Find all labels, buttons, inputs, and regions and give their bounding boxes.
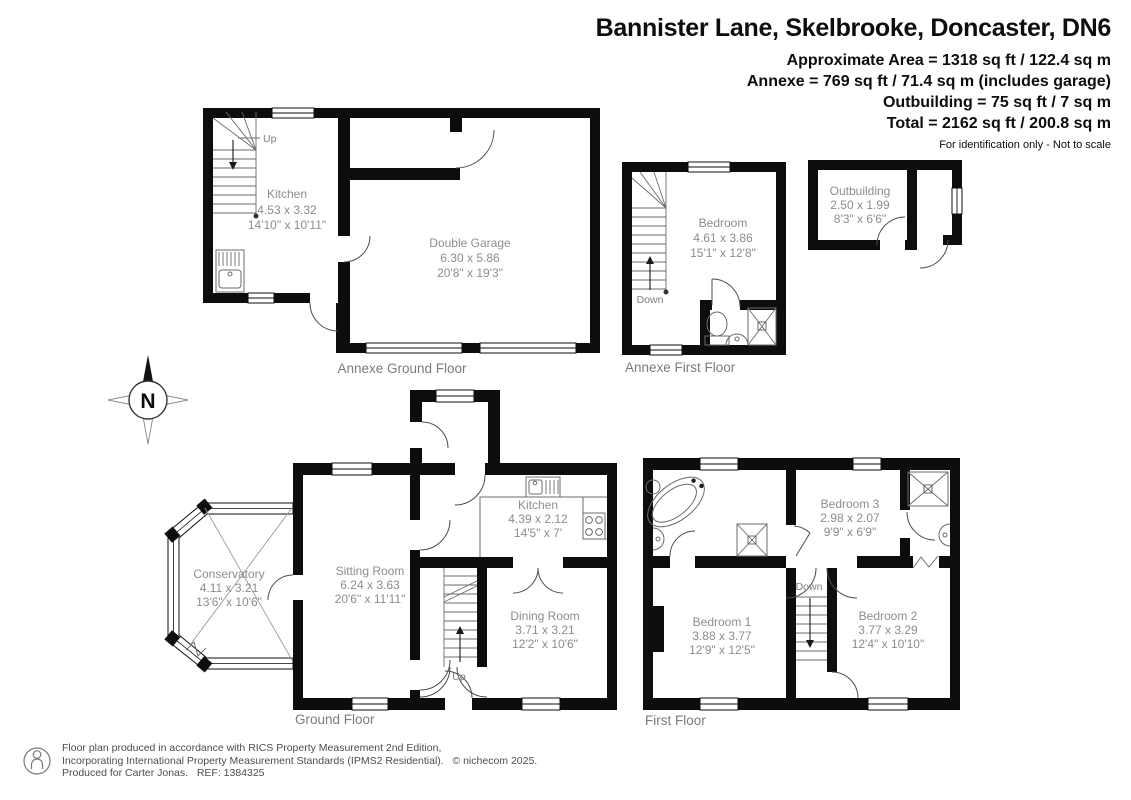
annexe-first-doors <box>712 279 740 307</box>
footer-line-3: Produced for Carter Jonas. REF: 1384325 <box>62 767 537 780</box>
ground-stairs: Up <box>444 568 477 683</box>
room-imperial: 8'3" x 6'6" <box>834 212 886 226</box>
room-name: Bedroom 1 <box>693 615 752 629</box>
room-imperial: 12'9" x 12'5" <box>689 643 755 657</box>
annexe-ground-stairs-label: Up <box>263 133 277 145</box>
room-metric: 3.77 x 3.29 <box>858 623 918 637</box>
bedroom2-label: Bedroom 2 3.77 x 3.29 12'4" x 10'10" <box>852 609 925 651</box>
room-imperial: 13'6" x 10'6" <box>196 595 262 609</box>
room-imperial: 15'1" x 12'8" <box>690 246 756 260</box>
footer-text: Floor plan produced in accordance with R… <box>62 742 537 780</box>
compass-rose: N <box>108 356 188 444</box>
first-floor-label: First Floor <box>645 713 706 728</box>
annexe-bedroom-label: Bedroom 4.61 x 3.86 15'1" x 12'8" <box>690 216 756 260</box>
room-imperial: 9'9" x 6'9" <box>824 525 876 539</box>
ground-kitchen-label: Kitchen 4.39 x 2.12 14'5" x 7' <box>508 498 568 540</box>
annexe-first-stairs-label: Down <box>637 294 664 306</box>
room-name: Outbuilding <box>830 184 891 198</box>
room-name: Double Garage <box>429 236 511 250</box>
person-logo-icon <box>22 742 52 780</box>
plan-annexe-ground-floor: Up Kitchen 4.53 x 3.32 14'10" x 10'11" D… <box>203 108 600 376</box>
room-imperial: 20'8" x 19'3" <box>437 266 503 280</box>
room-metric: 2.50 x 1.99 <box>830 198 890 212</box>
plan-annexe-first-floor: Down Bedroom 4.61 x 3.86 15'1" x 12'8" A… <box>622 162 786 375</box>
shower-icon <box>748 308 776 345</box>
plan-outbuilding: Outbuilding 2.50 x 1.99 8'3" x 6'6" <box>808 160 962 268</box>
floor-plan-svg: Up Kitchen 4.53 x 3.32 14'10" x 10'11" D… <box>0 0 1131 800</box>
outbuilding-windows <box>952 188 962 214</box>
ground-floor-label: Ground Floor <box>295 712 375 727</box>
conservatory-label: Conservatory 4.11 x 3.21 13'6" x 10'6" <box>193 567 264 609</box>
compass-north-label: N <box>140 390 155 413</box>
sitting-room-label: Sitting Room 6.24 x 3.63 20'6" x 11'11" <box>335 564 406 606</box>
room-name: Conservatory <box>193 567 264 581</box>
room-name: Kitchen <box>267 187 307 201</box>
room-metric: 6.30 x 5.86 <box>440 251 500 265</box>
room-metric: 4.11 x 3.21 <box>200 581 259 595</box>
ensuite-shower-icon <box>908 472 948 506</box>
annexe-bathroom-fixtures <box>705 308 776 345</box>
room-imperial: 12'2" x 10'6" <box>512 637 578 651</box>
room-metric: 3.88 x 3.77 <box>692 629 752 643</box>
dining-room-label: Dining Room 3.71 x 3.21 12'2" x 10'6" <box>510 609 579 651</box>
room-name: Bedroom 3 <box>821 497 880 511</box>
shower-icon <box>737 524 767 556</box>
kitchen-sink-icon <box>526 477 560 497</box>
bedroom1-label: Bedroom 1 3.88 x 3.77 12'9" x 12'5" <box>689 615 755 657</box>
footer: Floor plan produced in accordance with R… <box>22 742 537 780</box>
chimney-breast <box>653 606 664 652</box>
room-imperial: 20'6" x 11'11" <box>335 592 406 606</box>
room-metric: 3.71 x 3.21 <box>515 623 575 637</box>
first-stairs: Down <box>796 581 827 660</box>
room-metric: 4.61 x 3.86 <box>693 231 753 245</box>
first-doors <box>670 512 935 698</box>
ground-walls <box>293 390 617 710</box>
room-imperial: 14'5" x 7' <box>514 526 562 540</box>
room-name: Kitchen <box>518 498 558 512</box>
bedroom3-label: Bedroom 3 2.98 x 2.07 9'9" x 6'9" <box>820 497 880 539</box>
annexe-first-floor-label: Annexe First Floor <box>625 360 736 375</box>
hob-icon <box>583 513 605 539</box>
first-stairs-label: Down <box>796 581 823 593</box>
room-name: Dining Room <box>510 609 579 623</box>
room-metric: 2.98 x 2.07 <box>820 511 880 525</box>
basin-icon <box>653 528 664 550</box>
room-metric: 4.39 x 2.12 <box>508 512 568 526</box>
annexe-kitchen-label: Kitchen 4.53 x 3.32 14'10" x 10'11" <box>248 187 326 232</box>
annexe-kitchen-sink-icon <box>216 250 244 292</box>
double-garage-label: Double Garage 6.30 x 5.86 20'8" x 19'3" <box>429 236 511 280</box>
footer-line-1: Floor plan produced in accordance with R… <box>62 742 537 755</box>
annexe-first-stairs: Down <box>632 172 669 306</box>
room-imperial: 14'10" x 10'11" <box>248 218 326 232</box>
floorplan-page: { "header": { "title": "Bannister Lane, … <box>0 0 1131 800</box>
outbuilding-label: Outbuilding 2.50 x 1.99 8'3" x 6'6" <box>830 184 891 226</box>
room-name: Sitting Room <box>336 564 405 578</box>
plan-ground-floor: Up Conservatory 4.11 x 3.21 13'6" x 10'6… <box>164 390 617 727</box>
footer-line-2: Incorporating International Property Mea… <box>62 755 537 768</box>
room-metric: 6.24 x 3.63 <box>340 578 400 592</box>
annexe-ground-floor-label: Annexe Ground Floor <box>337 361 467 376</box>
ensuite-basin-icon <box>939 524 950 546</box>
room-imperial: 12'4" x 10'10" <box>852 637 925 651</box>
plan-first-floor: Down Bedroom 1 <box>639 458 960 728</box>
room-name: Bedroom 2 <box>859 609 918 623</box>
room-name: Bedroom <box>699 216 748 230</box>
room-metric: 4.53 x 3.32 <box>257 203 317 217</box>
ground-stairs-label: Up <box>452 671 466 683</box>
